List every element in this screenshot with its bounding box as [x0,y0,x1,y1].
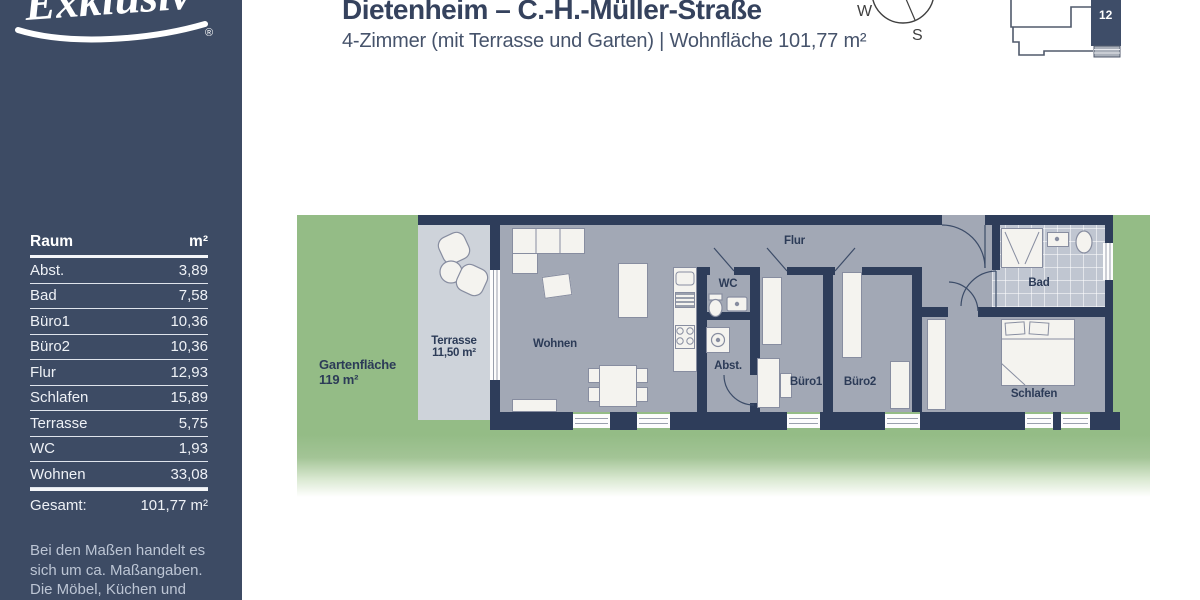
sidebar: Exklusiv ® Raum m² Abst. 3,89 Bad 7,58 B… [0,0,242,600]
buero1-door-leaf [767,248,787,271]
table-row: Terrasse 5,75 [30,411,208,437]
table-row: Bad 7,58 [30,284,208,310]
flur-label: Flur [767,235,822,247]
toilet-icon [1076,231,1092,253]
garden-name: Gartenfläche [319,357,399,372]
toilet-icon [709,300,722,317]
abst-door-arc [724,375,754,405]
row-name: Flur [30,364,56,381]
table-row: Abst. 3,89 [30,258,208,284]
row-value: 12,93 [170,364,208,381]
row-value: 3,89 [179,262,208,279]
schlafen-label: Schlafen [1002,388,1066,400]
row-name: Wohnen [30,466,86,483]
stove-burner [677,328,683,334]
stove-burner [677,338,683,344]
table-row: Büro1 10,36 [30,309,208,335]
garden-label: Gartenfläche 119 m² [319,357,399,387]
shower-mark [1025,232,1039,264]
page-subtitle: 4-Zimmer (mit Terrasse und Garten) | Woh… [342,30,866,53]
table-row: Flur 12,93 [30,360,208,386]
floor-plan: Gartenfläche 119 m² Terrasse 11,50 m² Wo… [297,215,1150,497]
wohnen-label: Wohnen [525,338,585,350]
row-name: Terrasse [30,415,88,432]
bed-fold-line [1001,363,1025,385]
header-raum: Raum [30,233,73,251]
row-value: 15,89 [170,389,208,406]
disclaimer-text: Bei den Maßen handelt es sich um ca. Maß… [30,541,228,600]
table-header: Raum m² [30,228,208,258]
exklusiv-logo: Exklusiv ® [0,0,242,72]
row-name: Abst. [30,262,64,279]
abst-label: Abst. [705,360,751,372]
table-row: Schlafen 15,89 [30,386,208,412]
row-value: 10,36 [170,313,208,330]
compass-west-label: W [857,3,873,20]
row-name: Bad [30,287,57,304]
header-m2: m² [189,233,208,251]
stove-burner [687,338,693,344]
row-name: WC [30,440,55,457]
kitchen-sink [676,272,694,285]
wc-label: WC [705,278,751,290]
page-title: Dietenheim – C.-H.-Müller-Straße [342,0,762,26]
table-row: Wohnen 33,08 [30,462,208,488]
row-value: 7,58 [179,287,208,304]
logo-registered-mark: ® [205,27,213,39]
table-row: WC 1,93 [30,437,208,463]
garden-area: 119 m² [319,372,399,387]
row-name: Büro2 [30,338,70,355]
buero1-label: Büro1 [785,376,827,388]
row-value: 33,08 [170,466,208,483]
unit-number-label: 12 [1099,8,1113,22]
terrasse-label: Terrasse 11,50 m² [421,335,487,359]
stove-burner [687,328,693,334]
row-value: 5,75 [179,415,208,432]
wc-door-leaf [714,248,734,271]
schlafen-door-arc [949,282,978,311]
terrasse-area: 11,50 m² [421,347,487,359]
table-total-row: Gesamt: 101,77 m² [30,488,208,521]
logo-text: Exklusiv [22,0,193,30]
row-name: Büro1 [30,313,70,330]
total-value: 101,77 m² [140,497,208,514]
entrance-door-arc [942,225,985,268]
compass-icon: W S [855,0,950,72]
shower-mark [1005,232,1019,264]
compass-south-label: S [912,27,923,44]
table-row: Büro2 10,36 [30,335,208,361]
terrasse-name: Terrasse [421,335,487,347]
buero2-label: Büro2 [839,376,881,388]
row-value: 1,93 [179,440,208,457]
room-area-table: Raum m² Abst. 3,89 Bad 7,58 Büro1 10,36 … [30,228,208,521]
total-label: Gesamt: [30,497,87,514]
bad-label: Bad [1019,277,1059,289]
site-plan-thumbnail: 12 [1003,0,1128,66]
highlighted-unit [1091,0,1121,46]
row-value: 10,36 [170,338,208,355]
row-name: Schlafen [30,389,88,406]
buero2-door-leaf [835,248,855,271]
